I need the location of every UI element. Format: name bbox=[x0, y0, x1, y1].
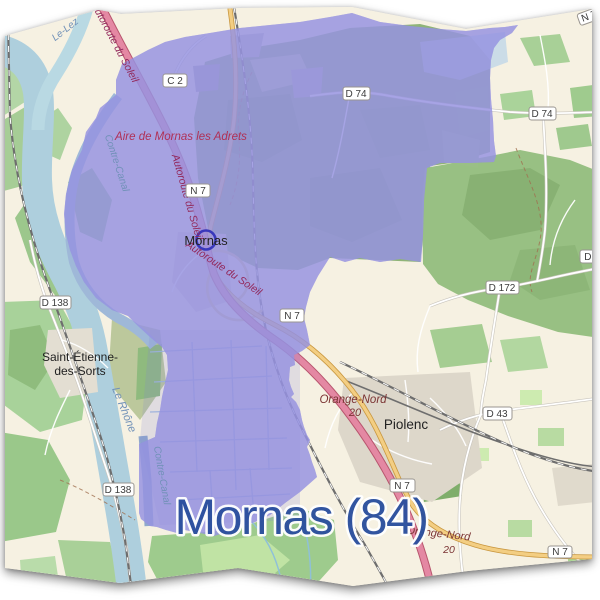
svg-text:des-Sorts: des-Sorts bbox=[54, 364, 105, 378]
svg-text:Aire de Mornas les Adrets: Aire de Mornas les Adrets bbox=[114, 131, 247, 143]
svg-text:D 74: D 74 bbox=[531, 109, 553, 120]
svg-text:Mornas: Mornas bbox=[184, 233, 228, 248]
svg-text:N 7: N 7 bbox=[284, 311, 300, 322]
svg-text:D 138: D 138 bbox=[42, 298, 69, 309]
svg-text:D 74: D 74 bbox=[345, 89, 367, 100]
svg-text:Piolenc: Piolenc bbox=[384, 417, 429, 432]
svg-text:N 7: N 7 bbox=[190, 186, 206, 197]
svg-text:Saint-Étienne-: Saint-Étienne- bbox=[42, 349, 118, 364]
svg-text:D 1: D 1 bbox=[584, 252, 600, 263]
svg-text:C 2: C 2 bbox=[167, 76, 183, 87]
svg-text:N 7: N 7 bbox=[552, 547, 568, 558]
svg-text:D 172: D 172 bbox=[489, 283, 516, 294]
svg-text:20: 20 bbox=[348, 407, 362, 419]
svg-text:Orange-Nord: Orange-Nord bbox=[319, 394, 387, 406]
svg-text:Mornas (84): Mornas (84) bbox=[174, 489, 427, 545]
svg-text:D 43: D 43 bbox=[486, 409, 508, 420]
svg-text:20: 20 bbox=[442, 544, 455, 556]
svg-text:D 138: D 138 bbox=[105, 485, 132, 496]
